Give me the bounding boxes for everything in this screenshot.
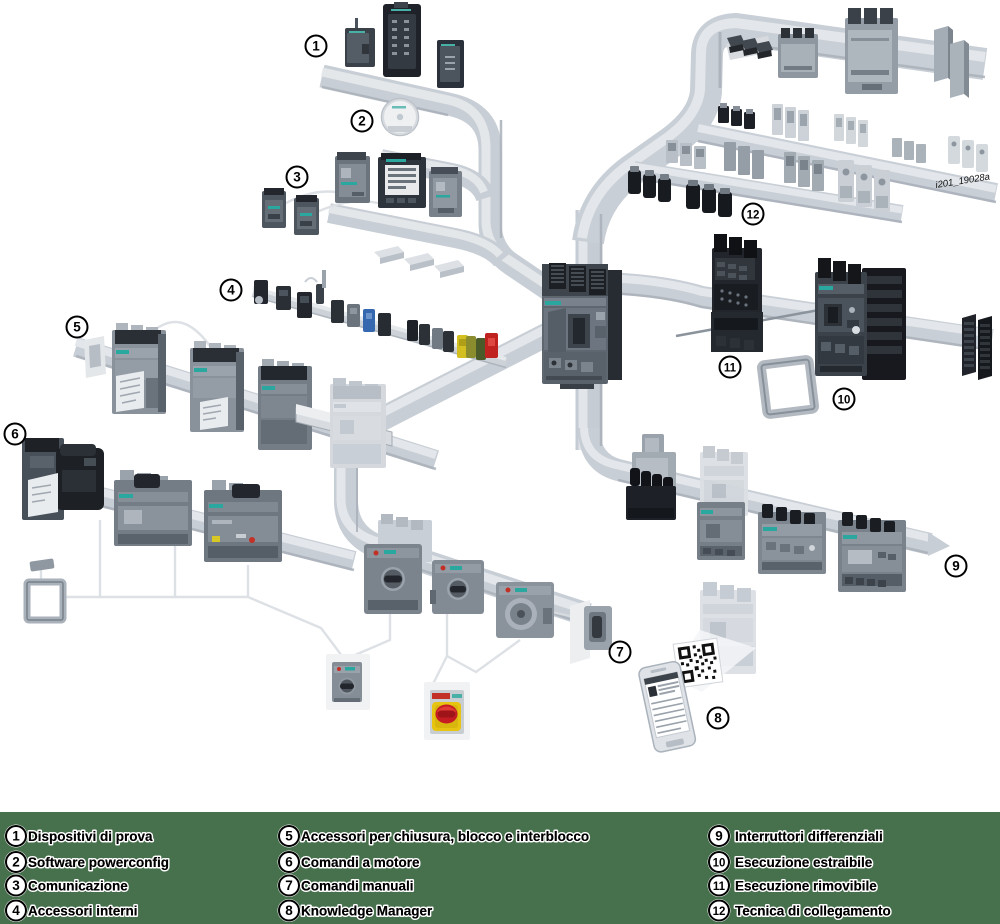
svg-text:Knowledge Manager: Knowledge Manager [301, 904, 433, 919]
svg-text:8: 8 [714, 711, 722, 726]
svg-text:Dispositivi di prova: Dispositivi di prova [28, 829, 153, 844]
svg-text:5: 5 [285, 829, 293, 844]
svg-text:7: 7 [285, 878, 293, 893]
svg-text:9: 9 [715, 829, 723, 844]
svg-text:12: 12 [713, 906, 726, 918]
svg-text:Tecnica di collegamento: Tecnica di collegamento [735, 904, 891, 919]
svg-text:11: 11 [713, 881, 726, 893]
svg-text:10: 10 [713, 858, 726, 870]
svg-text:12: 12 [747, 210, 760, 222]
svg-text:Comandi a motore: Comandi a motore [301, 855, 420, 870]
svg-text:10: 10 [838, 395, 851, 407]
svg-text:1: 1 [12, 829, 20, 844]
svg-text:Esecuzione estraibile: Esecuzione estraibile [735, 855, 873, 870]
svg-text:2: 2 [358, 114, 366, 129]
svg-text:9: 9 [952, 559, 960, 574]
svg-text:Interruttori differenziali: Interruttori differenziali [735, 829, 883, 844]
svg-text:Accessori per chiusura, blocco: Accessori per chiusura, blocco e interbl… [301, 829, 589, 844]
svg-text:Software powerconfig: Software powerconfig [28, 855, 169, 870]
svg-text:Esecuzione rimovibile: Esecuzione rimovibile [735, 879, 877, 894]
svg-text:11: 11 [724, 363, 737, 375]
svg-text:4: 4 [12, 903, 20, 918]
svg-text:3: 3 [293, 170, 301, 185]
svg-text:Comunicazione: Comunicazione [28, 879, 128, 894]
svg-text:Comandi manuali: Comandi manuali [301, 879, 414, 894]
svg-text:5: 5 [73, 320, 81, 335]
svg-text:6: 6 [285, 855, 293, 870]
svg-text:4: 4 [227, 283, 235, 298]
svg-text:1: 1 [312, 39, 320, 54]
svg-text:3: 3 [12, 878, 20, 893]
svg-text:6: 6 [11, 427, 19, 442]
svg-text:2: 2 [12, 855, 20, 870]
svg-text:8: 8 [285, 903, 293, 918]
svg-text:Accessori interni: Accessori interni [28, 904, 138, 919]
svg-text:7: 7 [616, 645, 624, 660]
